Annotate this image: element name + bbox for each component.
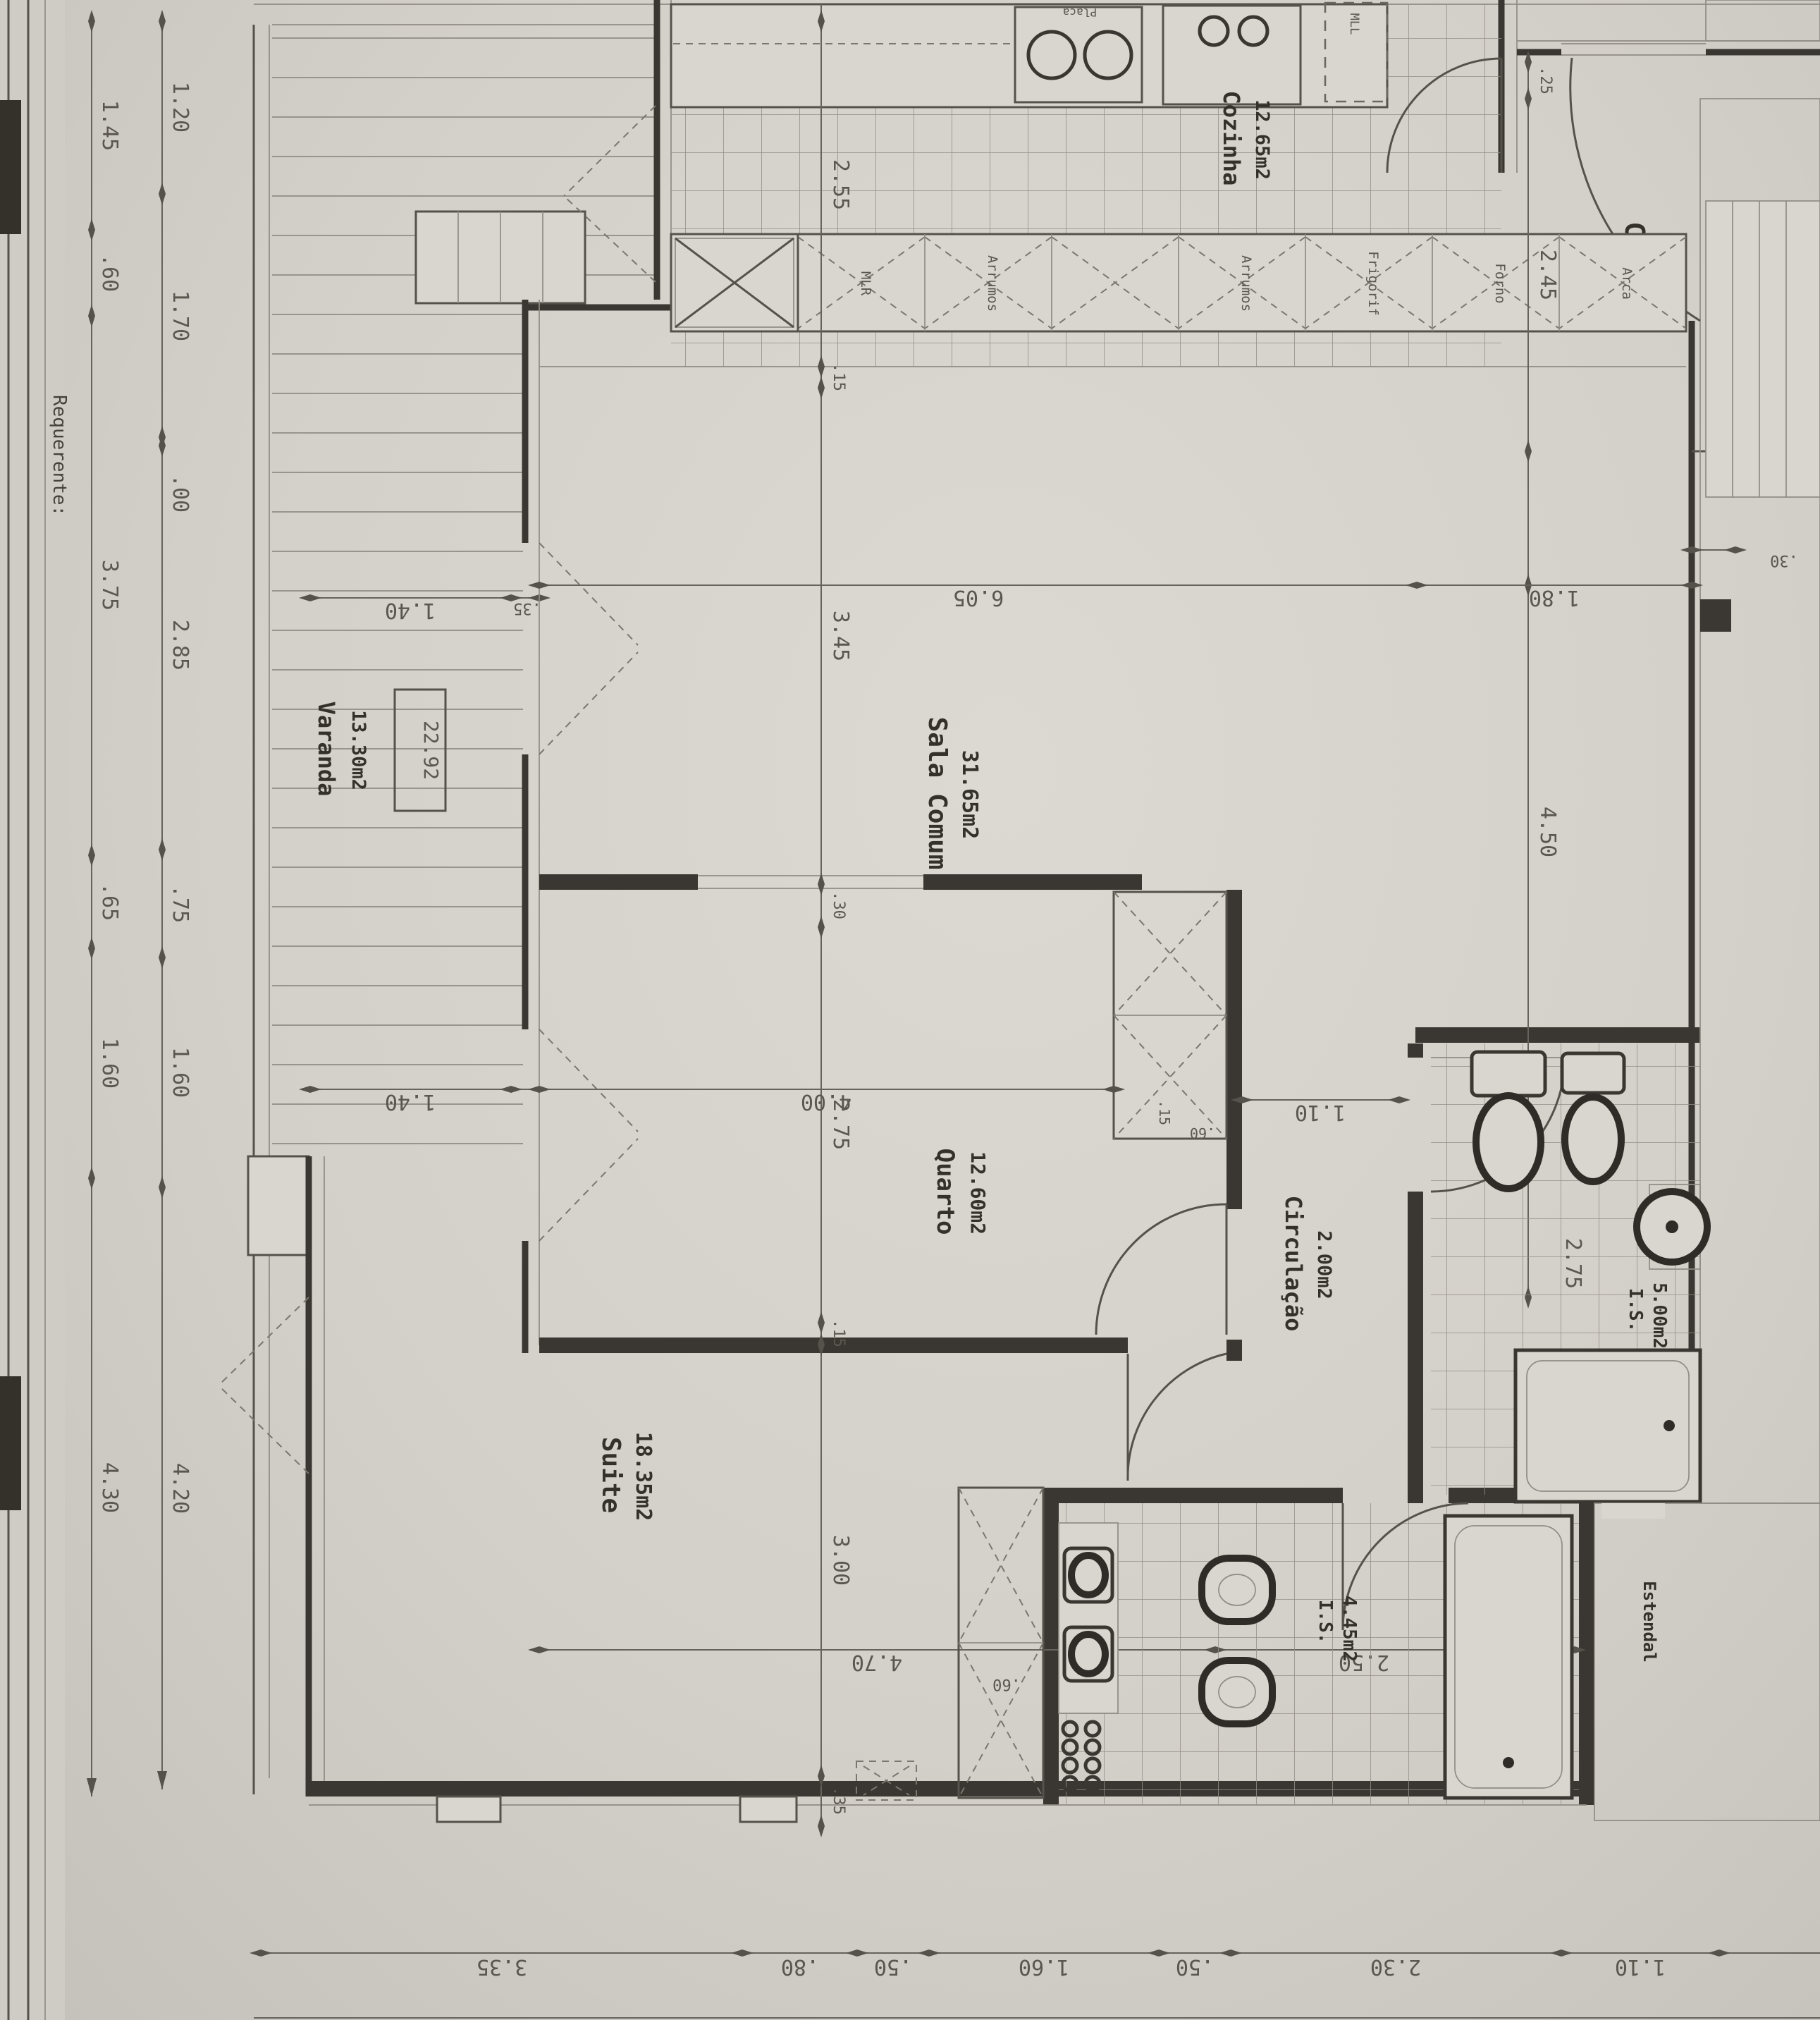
room-label-varanda: Varanda [313, 702, 340, 797]
level-marker: 22.92 [419, 721, 443, 780]
cooktop-label: Placa [1063, 6, 1097, 19]
room-label-estendal: Estendal [1640, 1581, 1659, 1663]
stairs [1706, 201, 1820, 497]
room-label-is2: I.S. [1315, 1600, 1336, 1644]
dim: .15 [830, 363, 847, 391]
dim: 1.60 [168, 1047, 192, 1098]
quarto-door-arc [1096, 1204, 1226, 1335]
dishwasher-label: MLL [1347, 13, 1361, 35]
dim: 1.60 [1019, 1954, 1069, 1979]
suite: Suite 18.35m2 .60 [219, 1297, 1043, 1800]
dim: 4.20 [168, 1463, 192, 1514]
bathroom-2: I.S. 4.45m2 [1059, 1503, 1579, 1805]
form-page-edge: Requerente: [0, 0, 70, 2020]
dim: 1.70 [168, 290, 192, 341]
dim: 4.00 [801, 1089, 851, 1114]
dim: .65 [97, 883, 122, 921]
dim: .50 [1176, 1954, 1214, 1979]
room-area-suite: 18.35m2 [631, 1432, 656, 1521]
dim: 1.40 [385, 1089, 436, 1114]
sala-window-casement [539, 543, 638, 754]
dim: 2.85 [168, 620, 192, 671]
room-area-circulacao: 2.00m2 [1313, 1230, 1335, 1299]
sala-comum: Sala Comum 31.65m2 [539, 543, 982, 1241]
room-area-varanda: 13.30m2 [348, 710, 369, 790]
dim: .00 [168, 475, 192, 513]
dim: 2.75 [1561, 1238, 1585, 1289]
room-area-is1: 5.00m2 [1649, 1283, 1670, 1349]
dim: 1.45 [97, 100, 122, 151]
counter-unit-label: Forno [1492, 263, 1508, 303]
dim: 4.30 [97, 1462, 122, 1513]
dim: .25 [1537, 66, 1554, 94]
room-area-sala: 31.65m2 [957, 750, 982, 839]
counter-unit-label: Arca [1619, 267, 1635, 300]
washbasin [1071, 1555, 1105, 1595]
structural-walls: .30 [1680, 0, 1820, 1503]
suite-balcony-door-casement [219, 1297, 309, 1474]
dim: 6.05 [953, 585, 1004, 610]
circulacao: Circulação 2.00m2 [1128, 1196, 1335, 1481]
dim: .60 [992, 1675, 1021, 1693]
dim-chain-bottom: 3.35 .80 .50 1.60 .50 2.30 1.10 [250, 1949, 1820, 2018]
toilet-tank [1472, 1052, 1545, 1096]
room-label-quarto: Quarto [931, 1149, 959, 1235]
window-sill [437, 1796, 500, 1822]
dim: .30 [1770, 551, 1798, 569]
form-field-box [0, 100, 21, 234]
bathtub-2 [1445, 1516, 1572, 1798]
dim: .50 [874, 1954, 912, 1979]
dim: 4.50 [1535, 807, 1560, 857]
dim: .60 [97, 254, 122, 292]
dim: 3.35 [476, 1954, 527, 1979]
counter-unit-label: Frigorif [1365, 251, 1381, 316]
room-label-is1: I.S. [1625, 1288, 1646, 1333]
counter-unit-label: Arrumos [985, 255, 1000, 312]
dim: .80 [781, 1954, 819, 1979]
toilet-2 [1202, 1558, 1272, 1622]
dim: 4.70 [851, 1650, 902, 1675]
dim: 1.40 [385, 598, 436, 623]
room-label-suite: Suite [596, 1437, 625, 1513]
cozinha: Placa MLL MLR Arrumos Arrumos Frigorif F… [539, 3, 1686, 367]
bathroom-1: I.S. 5.00m2 2.75 [1431, 1043, 1707, 1502]
room-label-sala: Sala Comum [923, 717, 952, 870]
counter-unit-label: Arrumos [1238, 255, 1254, 312]
estendal: Estendal [1594, 1503, 1820, 1820]
dim: 2.45 [1535, 250, 1560, 300]
room-label-cozinha: Cozinha [1218, 91, 1245, 186]
bidet-back [1562, 1053, 1624, 1093]
dim: 1.60 [97, 1038, 122, 1089]
washbasin [1071, 1634, 1105, 1674]
dim: 1.10 [1295, 1100, 1346, 1125]
column [1700, 599, 1731, 632]
dim: 2.30 [1370, 1954, 1421, 1979]
dim: .35 [830, 1787, 847, 1815]
dim: 1.80 [1529, 585, 1580, 610]
dim: .15 [830, 1319, 847, 1347]
dim: .75 [168, 885, 192, 923]
window-sill [740, 1796, 797, 1822]
quarto-window-casement [539, 1029, 638, 1241]
dim: 3.45 [828, 611, 853, 661]
room-area-is2: 4.45m2 [1339, 1596, 1360, 1662]
counter-unit-label: MLR [858, 271, 873, 296]
bidet-2 [1202, 1660, 1272, 1724]
dim: .30 [830, 891, 847, 919]
floorplan-photo: Requerente: 1.45 .60 3.75 .65 1.60 4.30 … [0, 0, 1820, 2020]
dim: 2.55 [828, 159, 853, 210]
form-field-box [0, 1376, 21, 1510]
dim: 1.10 [1615, 1954, 1666, 1979]
bidet [1565, 1097, 1621, 1182]
dim: 3.75 [97, 560, 122, 611]
dim: .35 [513, 599, 541, 617]
requerente-label: Requerente: [49, 395, 70, 516]
dim: 3.00 [828, 1535, 853, 1586]
room-area-cozinha: 12.65m2 [1251, 99, 1273, 180]
dim-chain-left-inner: 1.20 1.70 .00 2.85 .75 1.60 4.20 [157, 10, 192, 1789]
parapet-pillar [248, 1156, 309, 1255]
toilet [1476, 1096, 1541, 1189]
dim: .15 [1156, 1100, 1173, 1125]
dim: 1.20 [168, 82, 192, 133]
suite-door-arc [1128, 1354, 1226, 1481]
dim: .60 [1190, 1125, 1215, 1141]
dim-chain-left-outer: 1.45 .60 3.75 .65 1.60 4.30 [87, 10, 122, 1796]
room-area-quarto: 12.60m2 [966, 1151, 990, 1235]
room-label-circulacao: Circulação [1280, 1196, 1307, 1332]
quarto: Quarto 12.60m2 .15 .60 [931, 892, 1226, 1335]
